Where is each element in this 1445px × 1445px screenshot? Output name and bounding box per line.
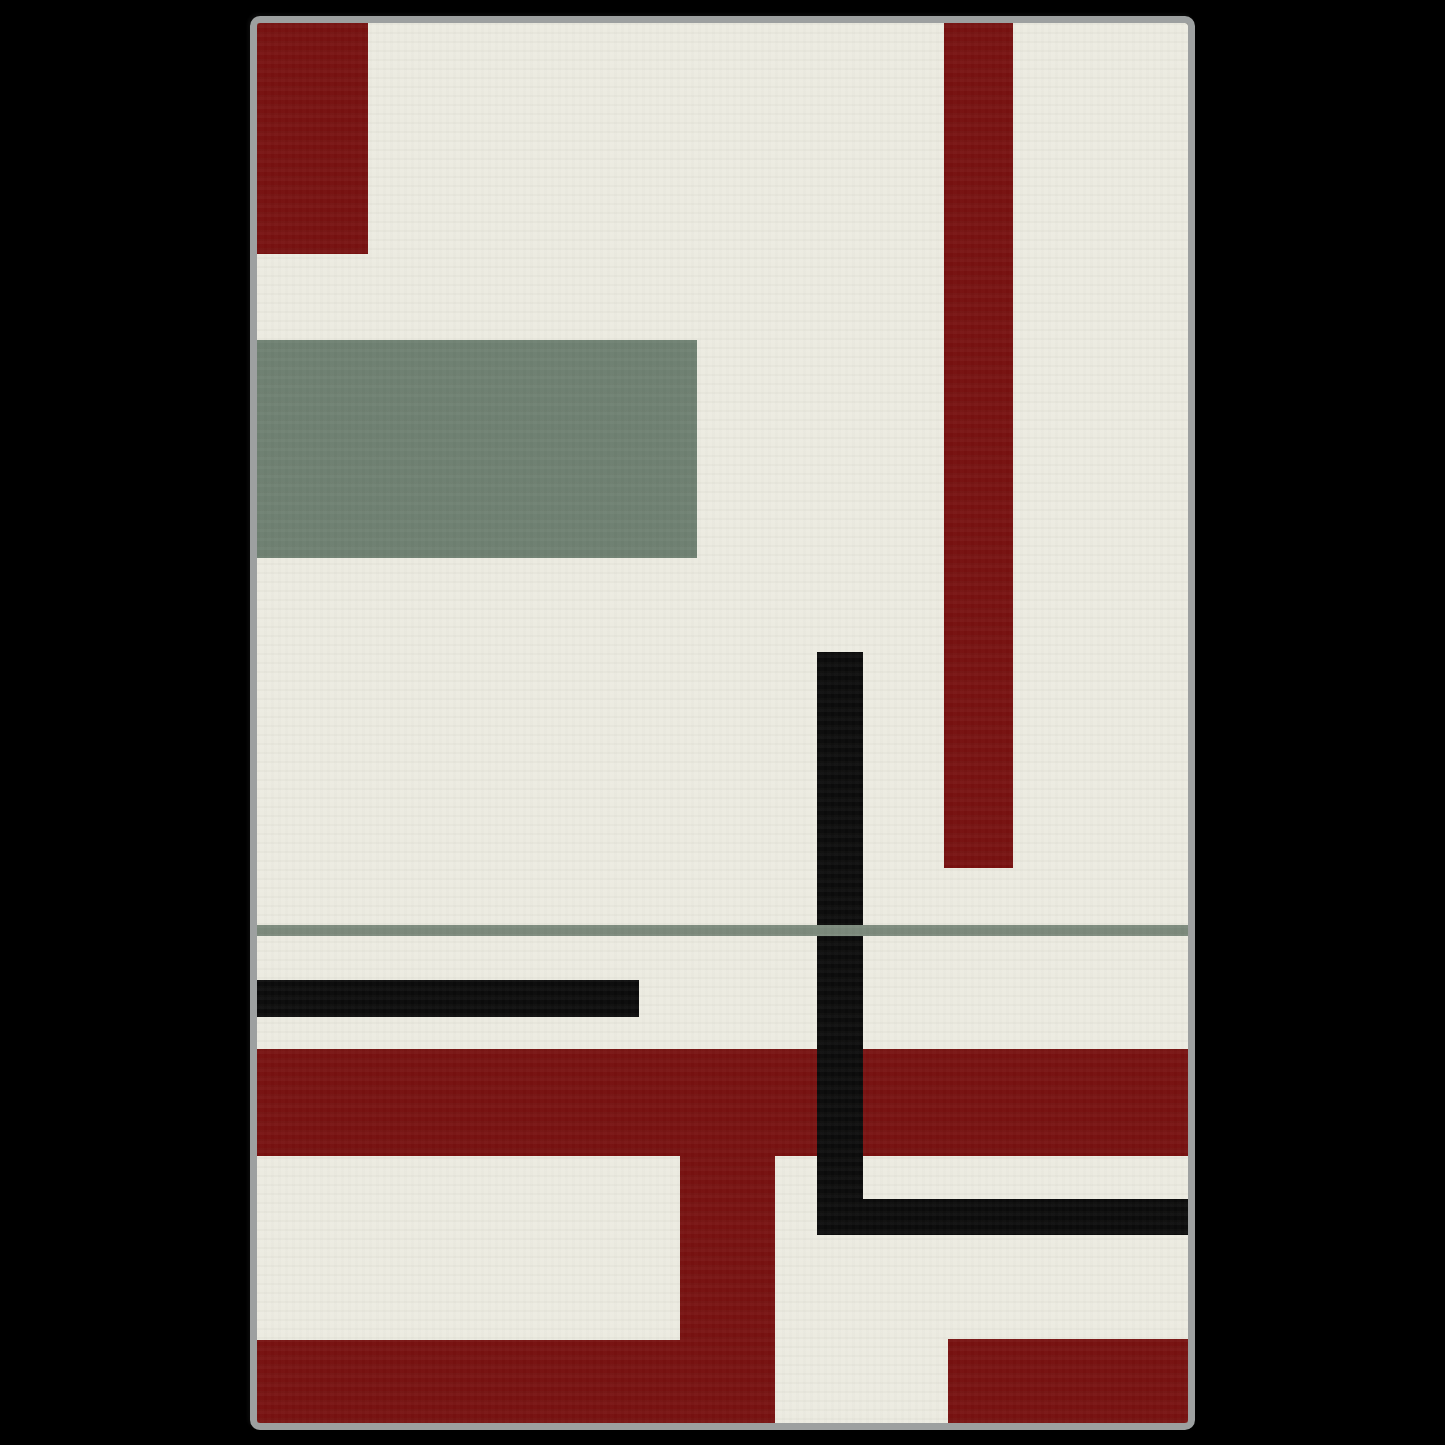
shape-right-red-bar xyxy=(944,23,1013,868)
shape-black-horizontal-bar-left xyxy=(257,980,639,1017)
shape-green-horizontal-line xyxy=(257,925,1188,936)
shape-black-vertical-bar xyxy=(817,652,863,1235)
artwork-canvas xyxy=(257,23,1188,1423)
artwork-shapes-container xyxy=(257,23,1188,1423)
shape-sage-green-rect xyxy=(257,340,697,558)
shape-black-horizontal-arm xyxy=(817,1199,1188,1235)
shape-red-horizontal-band xyxy=(257,1049,1188,1156)
shape-red-vertical-column xyxy=(680,1156,775,1423)
artwork-frame xyxy=(250,16,1195,1430)
shape-bottom-right-red-rect xyxy=(948,1339,1188,1423)
page-background xyxy=(0,0,1445,1445)
shape-bottom-left-red-rect xyxy=(257,1340,680,1423)
shape-top-left-red-rect xyxy=(257,23,368,254)
